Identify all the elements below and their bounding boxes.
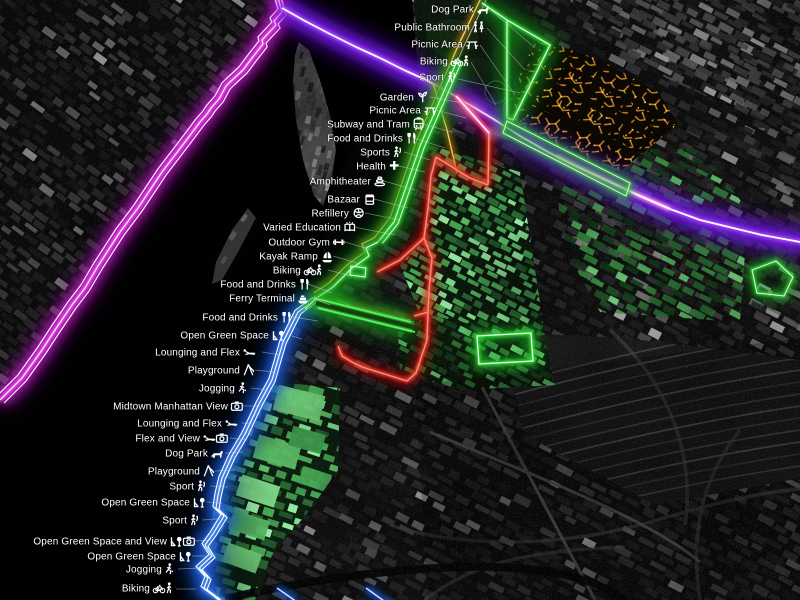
svg-text:Flex and View: Flex and View (135, 434, 200, 445)
svg-text:Open Green Space: Open Green Space (87, 552, 176, 563)
svg-text:Sports: Sports (360, 148, 390, 159)
svg-text:Subway and Tram: Subway and Tram (327, 120, 410, 131)
svg-text:Food and Drinks: Food and Drinks (327, 134, 403, 145)
svg-text:Lounging and Flex: Lounging and Flex (137, 419, 222, 430)
svg-text:Picnic Area: Picnic Area (369, 106, 421, 117)
svg-text:Open Green Space: Open Green Space (101, 498, 190, 509)
svg-text:Health: Health (356, 162, 386, 173)
svg-text:Open Green Space and View: Open Green Space and View (33, 537, 167, 548)
svg-text:Public Bathroom: Public Bathroom (394, 23, 470, 34)
svg-text:Amphitheater: Amphitheater (310, 177, 372, 188)
svg-text:Ferry Terminal: Ferry Terminal (229, 294, 295, 305)
svg-text:Sport: Sport (162, 516, 187, 527)
svg-text:Midtown Manhattan View: Midtown Manhattan View (113, 402, 228, 413)
svg-text:Garden: Garden (380, 93, 414, 104)
svg-text:Lounging and Flex: Lounging and Flex (155, 348, 240, 359)
svg-text:Playground: Playground (148, 467, 200, 478)
svg-text:Picnic Area: Picnic Area (411, 40, 463, 51)
svg-text:Refillery: Refillery (312, 209, 349, 220)
svg-text:Open Green Space: Open Green Space (180, 331, 269, 342)
svg-text:Food and Drinks: Food and Drinks (202, 313, 278, 324)
svg-text:Jogging: Jogging (199, 384, 235, 395)
svg-text:Varied Education: Varied Education (263, 223, 341, 234)
svg-text:Food and Drinks: Food and Drinks (220, 280, 296, 291)
svg-text:Dog Park: Dog Park (165, 449, 209, 460)
svg-text:Playground: Playground (188, 366, 240, 377)
svg-text:Biking: Biking (420, 57, 448, 68)
svg-text:Biking: Biking (273, 266, 301, 277)
svg-text:Outdoor Gym: Outdoor Gym (268, 238, 330, 249)
svg-text:Biking: Biking (122, 584, 150, 595)
svg-text:Bazaar: Bazaar (327, 195, 360, 206)
svg-text:Jogging: Jogging (126, 565, 162, 576)
svg-text:Sport: Sport (419, 73, 444, 84)
svg-text:Sport: Sport (169, 482, 194, 493)
svg-text:Dog Park: Dog Park (431, 5, 475, 16)
svg-text:Kayak Ramp: Kayak Ramp (259, 252, 318, 263)
